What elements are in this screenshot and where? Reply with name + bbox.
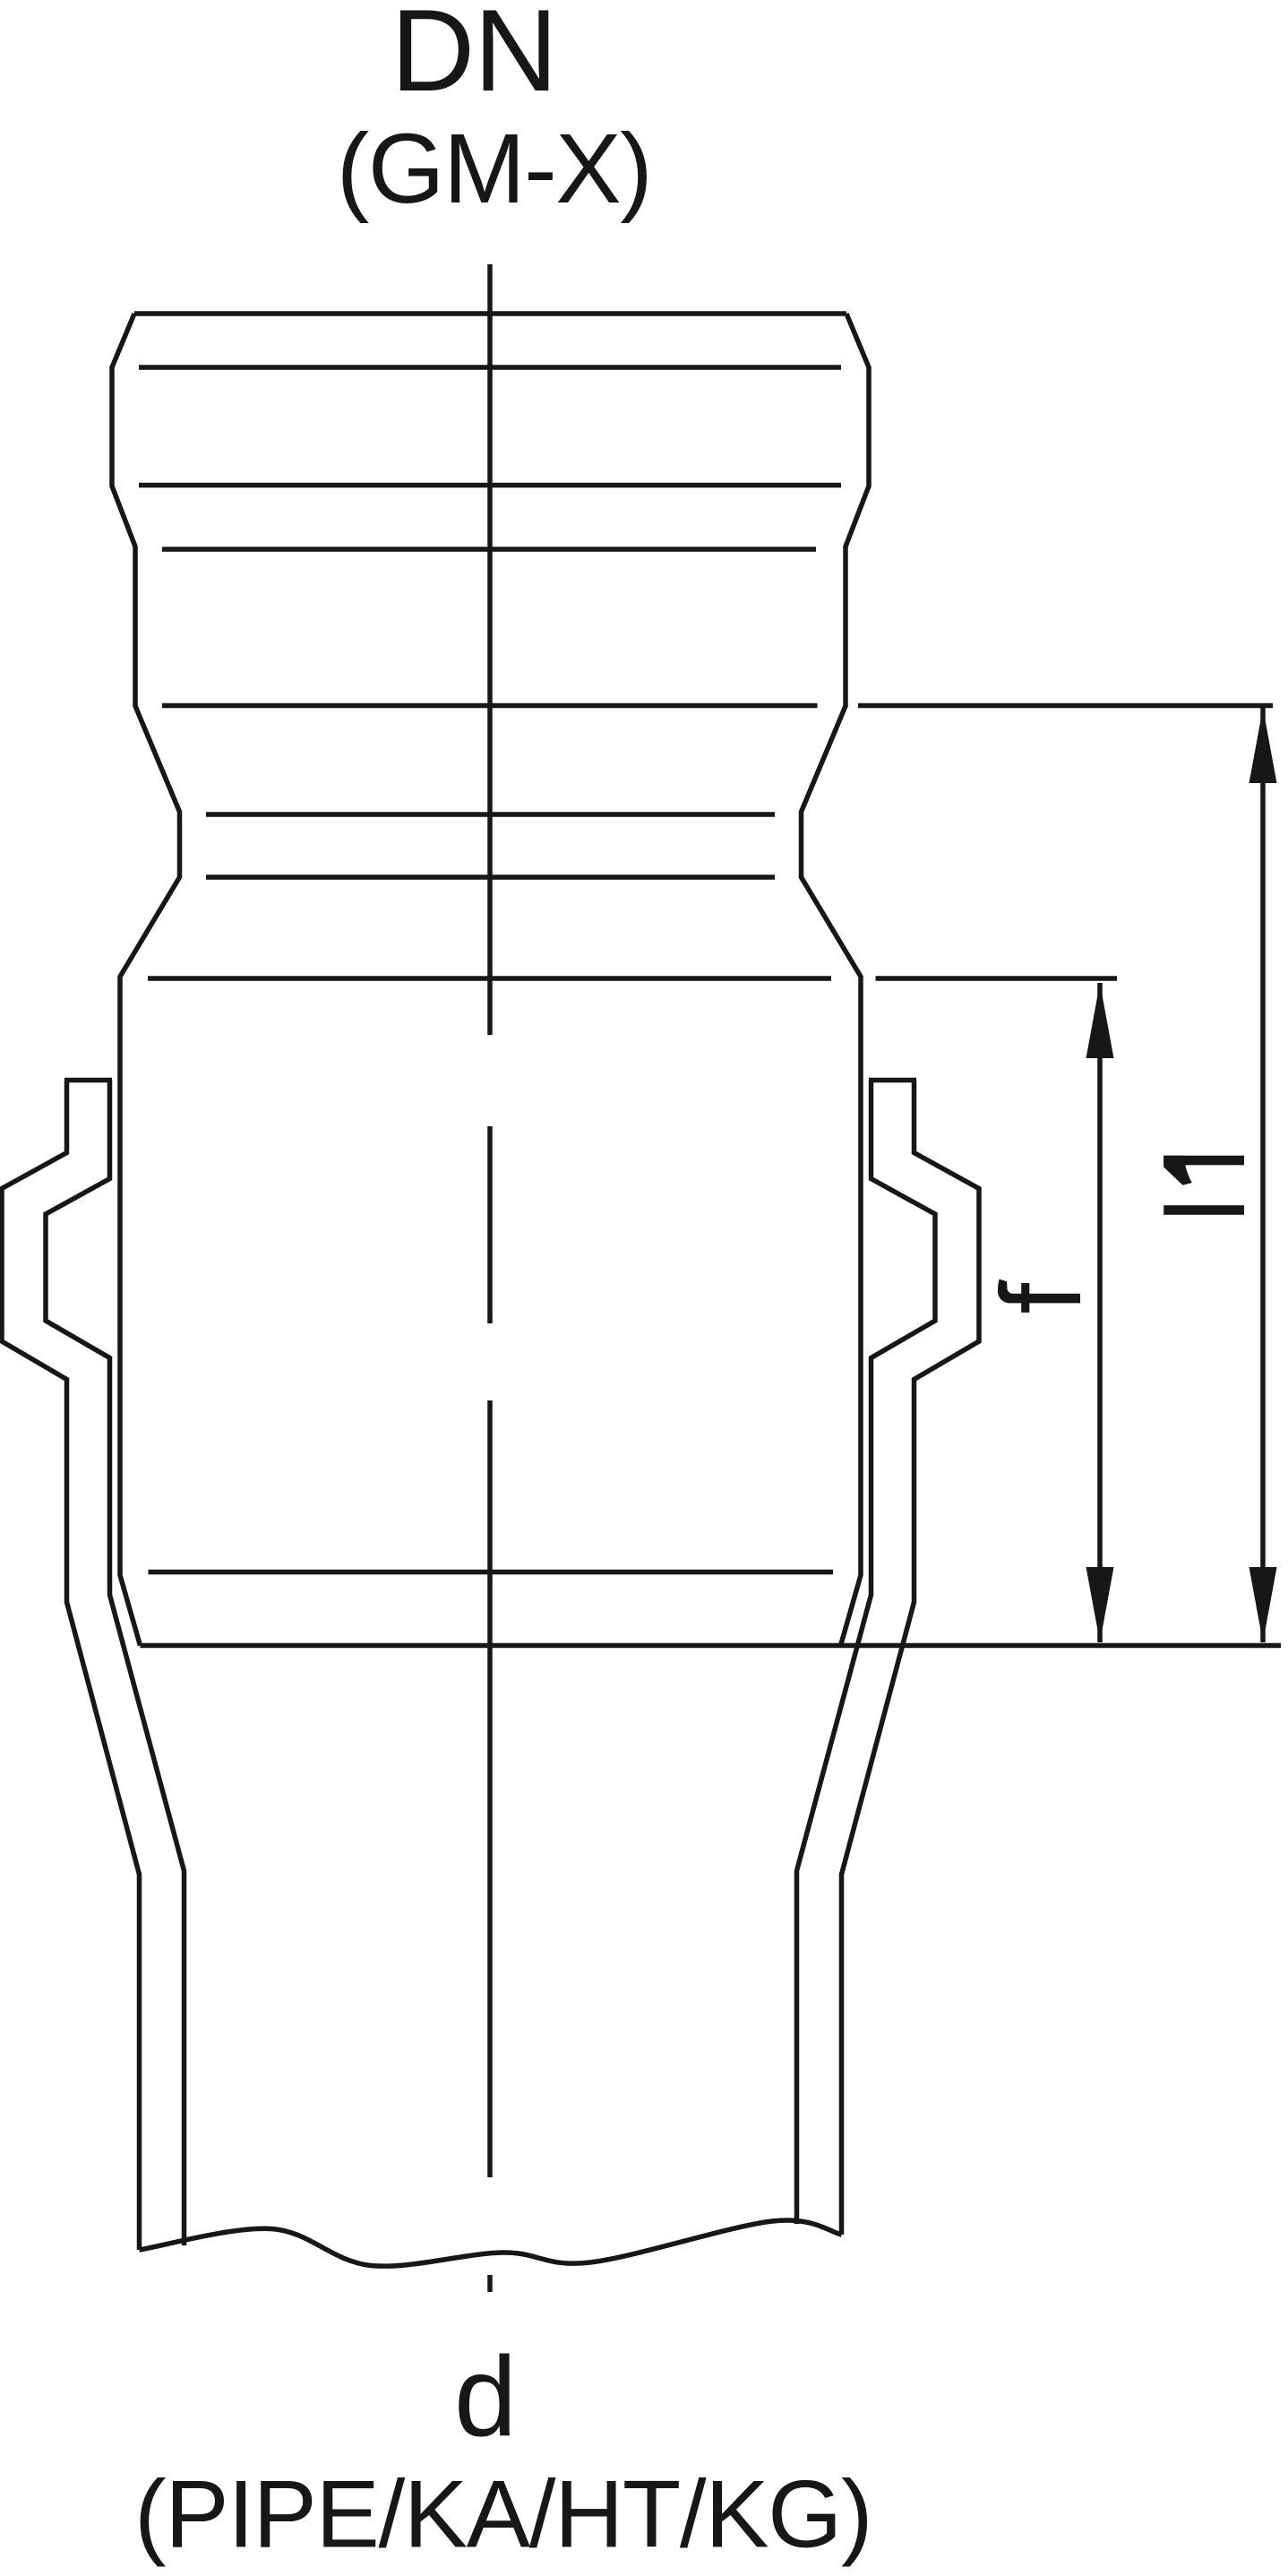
- svg-text:(PIPE/KA/HT/KG): (PIPE/KA/HT/KG): [134, 2460, 872, 2568]
- svg-text:(GM-X): (GM-X): [337, 114, 651, 224]
- svg-text:DN: DN: [391, 0, 556, 116]
- svg-text:d: d: [454, 2333, 517, 2460]
